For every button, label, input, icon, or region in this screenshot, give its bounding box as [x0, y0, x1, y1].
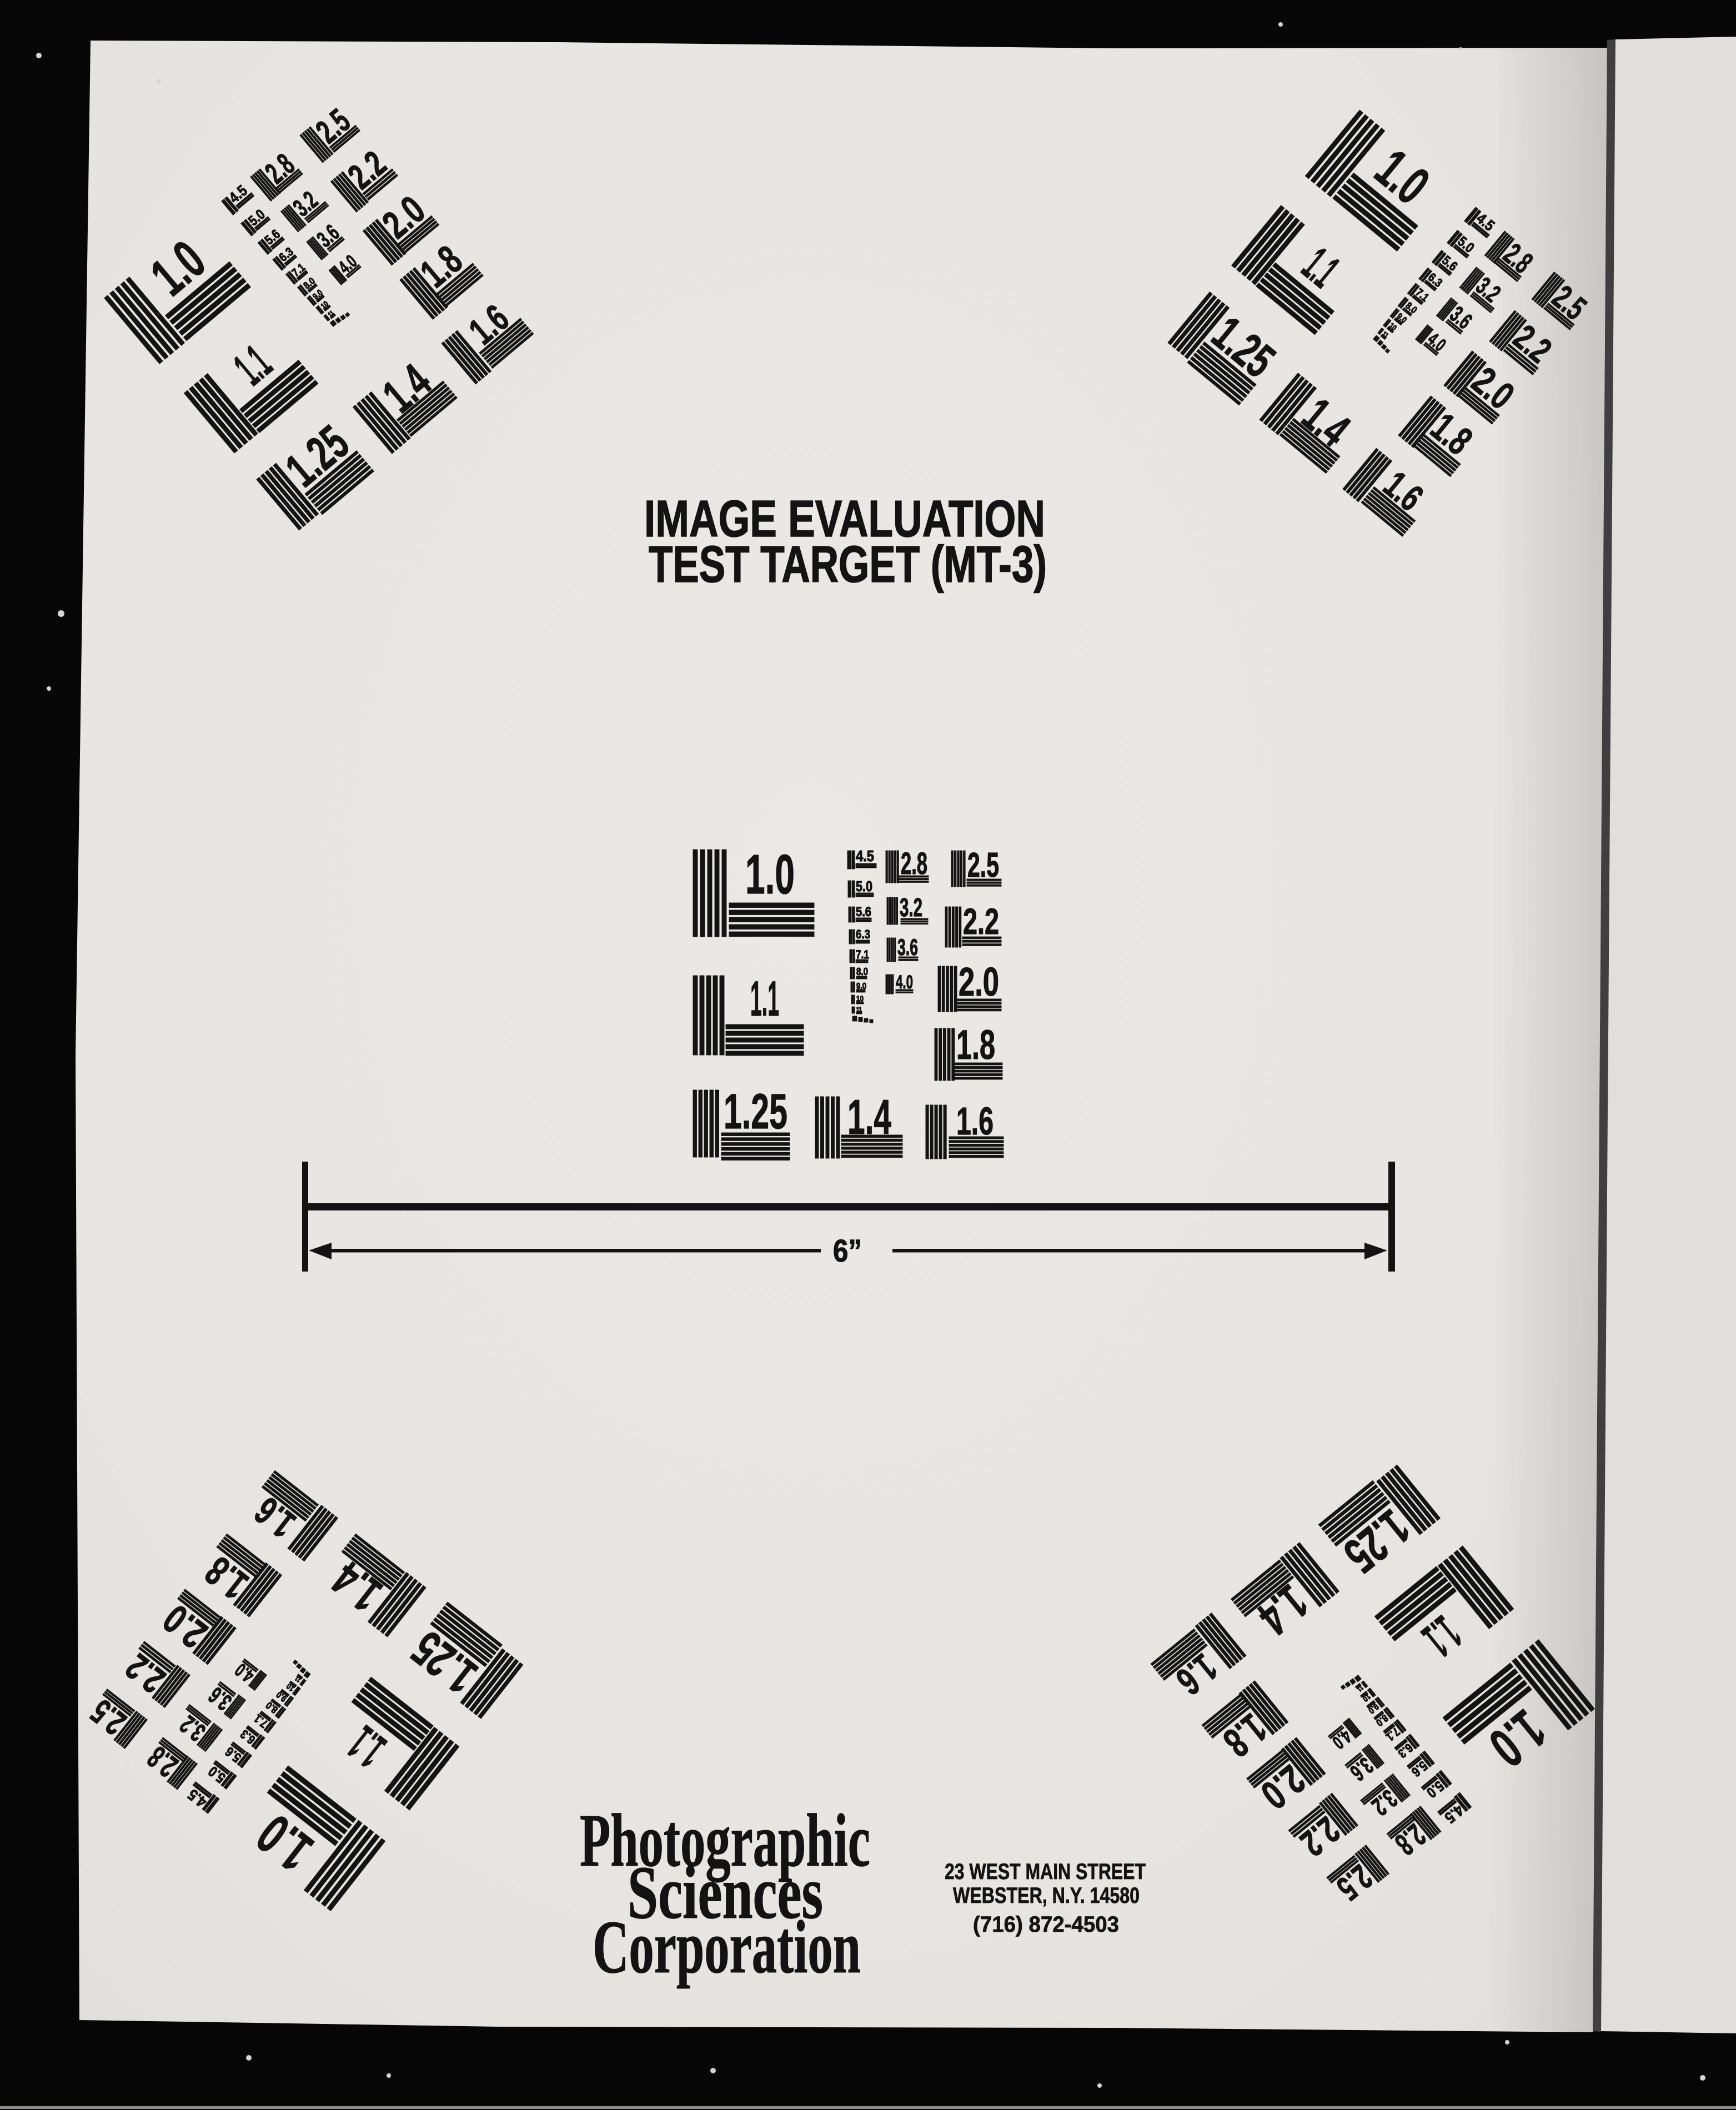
svg-text:Corporation: Corporation	[593, 1906, 861, 1989]
svg-text:(716) 872-4503: (716) 872-4503	[973, 1912, 1119, 1937]
svg-text:6”: 6”	[833, 1233, 862, 1269]
svg-text:23 WEST MAIN STREET: 23 WEST MAIN STREET	[945, 1860, 1146, 1884]
svg-text:TEST TARGET (MT-3): TEST TARGET (MT-3)	[649, 535, 1047, 593]
svg-text:WEBSTER, N.Y. 14580: WEBSTER, N.Y. 14580	[953, 1883, 1140, 1908]
